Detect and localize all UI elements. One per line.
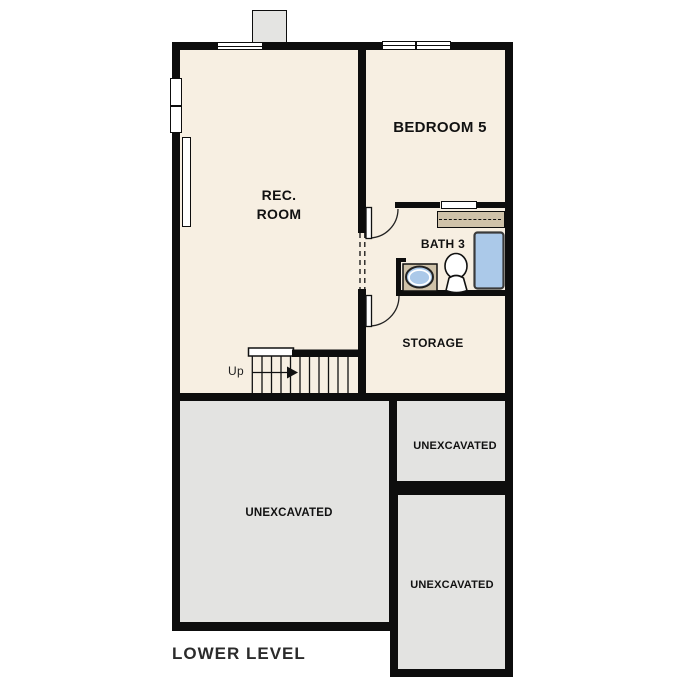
storage-label: STORAGE (383, 336, 483, 350)
window-mullion (171, 105, 181, 107)
wall-vanity-stub-horizontal (396, 258, 406, 262)
wall-foundation-top (172, 393, 513, 401)
window-mullion (383, 45, 450, 47)
unexcavated-bottom-right-label: UNEXCAVATED (397, 579, 507, 591)
left-wall-egress-window (182, 137, 191, 227)
unexcavated-left-label: UNEXCAVATED (219, 507, 359, 519)
wall-rec-divider-lower (358, 289, 366, 401)
rec-room-label-line2: ROOM (229, 205, 329, 224)
closet-shelf (437, 211, 505, 228)
wall-unexcavated-divider (389, 401, 397, 630)
unexcavated-top-right-label: UNEXCAVATED (400, 440, 510, 452)
rec-room-label-line1: REC. (229, 186, 329, 205)
plan-title: LOWER LEVEL (172, 644, 306, 664)
wall-bath-bottom (396, 290, 513, 296)
wall-unexcavated-right-divider (389, 481, 513, 489)
bath3-label: BATH 3 (406, 237, 480, 251)
closet-rod-dashed-line (439, 219, 501, 220)
closet-door-opening (441, 201, 477, 209)
wall-rec-divider-upper (358, 50, 366, 233)
wall-bedroom-bottom-right (477, 202, 513, 208)
wall-vanity-stub-vertical (396, 258, 401, 290)
floor-plan-lower-level: REC. ROOM BEDROOM 5 BATH 3 STORAGE UNEXC… (0, 0, 687, 687)
bedroom5-label: BEDROOM 5 (375, 119, 505, 136)
bedroom5-window (382, 41, 451, 50)
stairs-up-label: Up (228, 364, 252, 378)
window-mullion (218, 46, 262, 47)
left-wall-window (170, 78, 182, 133)
chimney-bumpout (252, 10, 287, 44)
wall-bedroom-bottom-left (395, 202, 440, 208)
rec-room-label: REC. ROOM (229, 186, 329, 224)
wall-unexcavated-left-bottom (172, 622, 397, 631)
rec-room-top-window (217, 42, 263, 50)
